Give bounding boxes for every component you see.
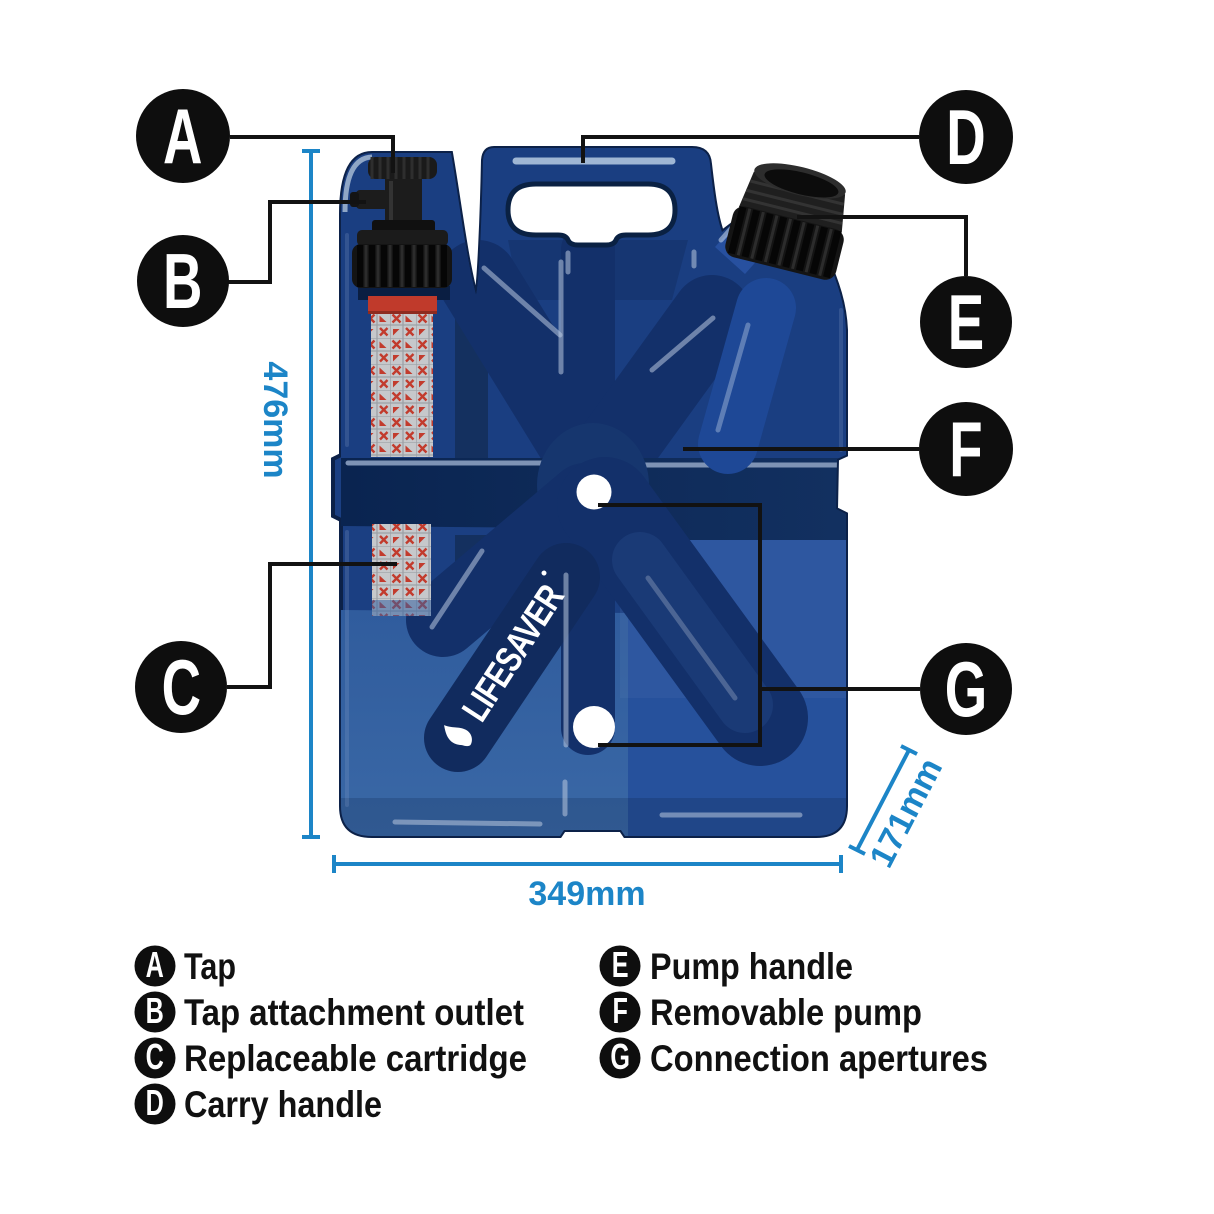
svg-text:C: C: [162, 644, 201, 731]
svg-text:D: D: [946, 94, 985, 181]
svg-text:B: B: [146, 991, 164, 1032]
svg-text:Carry handle: Carry handle: [184, 1084, 382, 1125]
svg-text:A: A: [146, 945, 164, 986]
svg-text:G: G: [610, 1037, 630, 1078]
svg-text:E: E: [612, 945, 629, 986]
svg-text:F: F: [613, 991, 628, 1032]
svg-text:D: D: [146, 1083, 164, 1124]
svg-text:G: G: [945, 646, 987, 733]
svg-text:B: B: [163, 238, 202, 325]
svg-text:349mm: 349mm: [528, 875, 645, 913]
svg-text:Connection apertures: Connection apertures: [650, 1038, 988, 1079]
svg-text:Removable pump: Removable pump: [650, 992, 922, 1033]
svg-text:Tap attachment outlet: Tap attachment outlet: [184, 992, 524, 1033]
svg-text:C: C: [146, 1037, 164, 1078]
svg-text:Pump handle: Pump handle: [650, 946, 853, 987]
svg-text:F: F: [949, 406, 982, 493]
svg-text:Tap: Tap: [184, 946, 236, 987]
svg-text:A: A: [163, 93, 202, 180]
svg-text:476mm: 476mm: [256, 361, 294, 478]
svg-text:Replaceable cartridge: Replaceable cartridge: [184, 1038, 527, 1079]
svg-text:E: E: [948, 279, 984, 366]
